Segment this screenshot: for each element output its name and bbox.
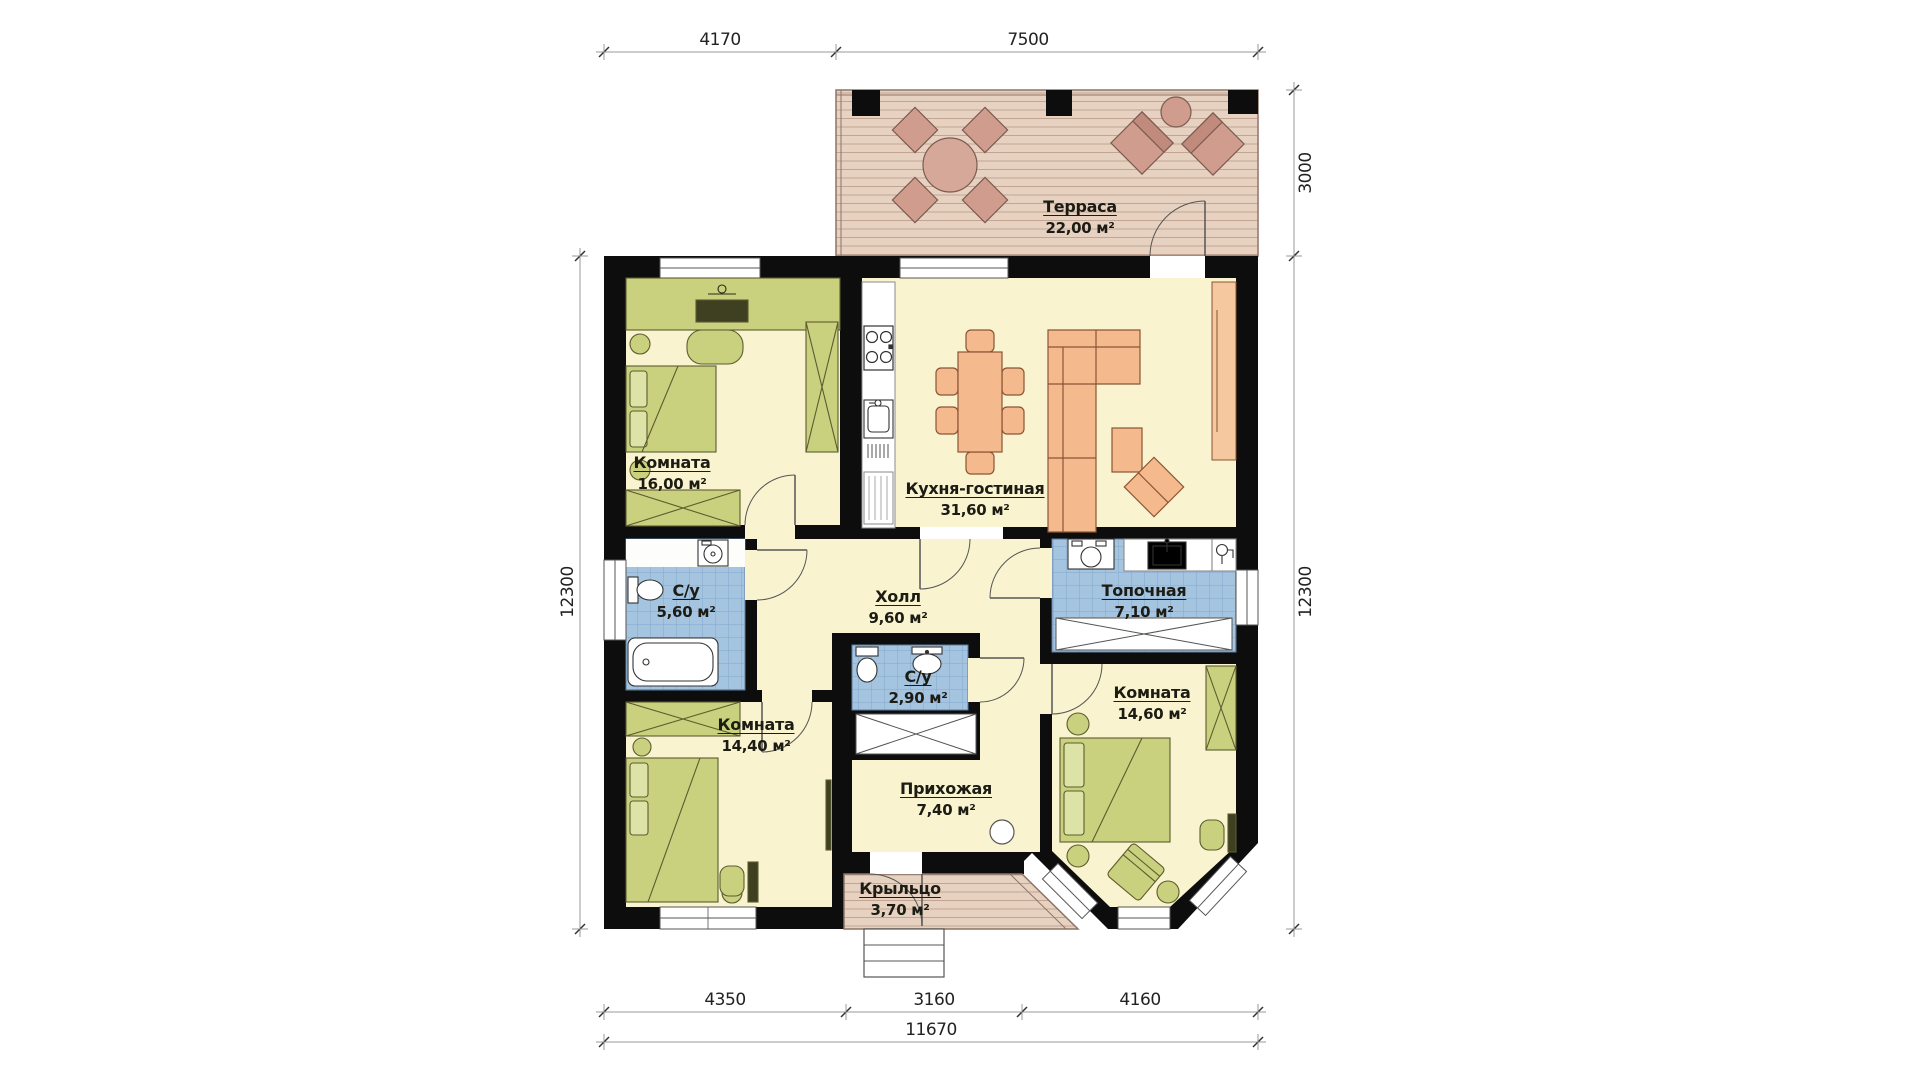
dressing-table-icon (1228, 814, 1236, 852)
bath1-label: С/у5,60 м² (657, 580, 716, 622)
pouf-icon (990, 820, 1014, 844)
utility-sink-icon (1124, 539, 1212, 571)
room1460-label: Комната14,60 м² (1114, 682, 1191, 724)
room1440-label: Комната14,40 м² (718, 714, 795, 756)
tv-cabinet-icon (1212, 282, 1236, 460)
hall-label: Холл9,60 м² (869, 586, 928, 628)
bed-icon (626, 758, 718, 902)
stool-icon (630, 334, 650, 354)
porch-label: Крыльцо3,70 м² (859, 878, 941, 920)
chair-icon (720, 866, 744, 896)
corridor-left-floor (757, 633, 832, 690)
terrace-label: Терраса22,00 м² (1043, 196, 1117, 238)
terrace-post (852, 90, 880, 116)
toilet-icon (856, 647, 878, 682)
desk-icon (748, 862, 758, 902)
kitchen-window (900, 258, 1008, 278)
boiler-label: Топочная7,10 м² (1102, 580, 1187, 622)
closet-icon (856, 714, 976, 754)
dim-bottom-2: 3160 (913, 990, 954, 1010)
stool-icon (633, 738, 651, 756)
coffee-table-icon (1112, 428, 1142, 472)
bed-icon (626, 366, 716, 452)
wardrobe-icon (806, 322, 838, 452)
room1460-window-south (1118, 907, 1170, 929)
kitchen-label: Кухня-гостиная31,60 м² (905, 478, 1044, 520)
stove-icon (864, 326, 893, 370)
dim-right-terrace: 3000 (1296, 152, 1316, 193)
room1440-window (660, 907, 756, 929)
dim-right-house: 12300 (1296, 566, 1316, 618)
dim-bottom-total: 11670 (905, 1020, 957, 1040)
closet-icon (1056, 618, 1232, 650)
bathtub-icon (628, 638, 718, 686)
floor-plan-drawing (0, 0, 1920, 1080)
floor-plan: Терраса22,00 м² Комната16,00 м² Кухня-го… (0, 0, 1920, 1080)
tv-icon (826, 780, 831, 850)
dim-top-right: 7500 (1007, 30, 1048, 50)
boiler-window (1236, 570, 1258, 625)
terrace-post (1228, 90, 1258, 114)
bed-icon (1060, 738, 1170, 842)
stool-icon (1067, 713, 1089, 735)
pump-icon (1212, 539, 1236, 571)
corridor-right-floor (980, 633, 1040, 760)
bath2-label: С/у2,90 м² (889, 666, 948, 708)
wardrobe-icon (1206, 666, 1236, 750)
room16-label: Комната16,00 м² (634, 452, 711, 494)
stool-icon (1067, 845, 1089, 867)
dim-bottom-1: 4350 (704, 990, 745, 1010)
porch-steps-icon (864, 929, 944, 977)
boiler-icon (1068, 539, 1114, 569)
terrace-post (1046, 90, 1072, 116)
washing-machine-icon (698, 540, 728, 566)
bath1-window (604, 560, 626, 640)
dim-bottom-3: 4160 (1119, 990, 1160, 1010)
room16-window (660, 258, 760, 278)
cabinet-icon (864, 472, 893, 524)
dim-top-left: 4170 (699, 30, 740, 50)
chair-icon (687, 330, 743, 364)
chair-icon (1200, 820, 1224, 850)
dresser-icon (696, 300, 748, 322)
closet-icon (626, 490, 740, 526)
dim-left-house: 12300 (558, 566, 578, 618)
hallway-label: Прихожая7,40 м² (900, 778, 992, 820)
stool-icon (1157, 881, 1179, 903)
